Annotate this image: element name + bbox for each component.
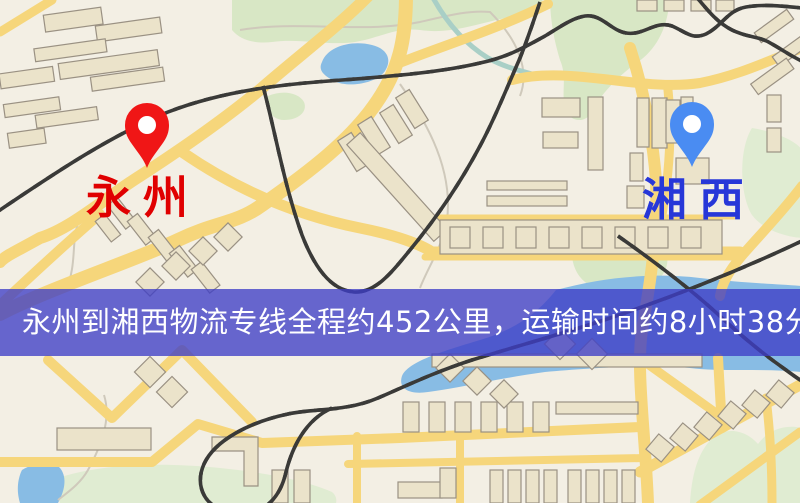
origin-pin-icon[interactable] [123,102,171,168]
pond-bottom-left [18,463,65,503]
route-info-banner: 永州到湘西物流专线全程约452公里，运输时间约8小时38分钟. [0,289,800,356]
destination-pin-icon[interactable] [668,101,716,167]
map-artwork [0,0,800,503]
origin-pin-hole [138,116,156,134]
destination-city-label: 湘西 [642,177,756,222]
route-info-text: 永州到湘西物流专线全程约452公里，运输时间约8小时38分钟. [22,305,800,339]
map-canvas: 永州 湘西 永州到湘西物流专线全程约452公里，运输时间约8小时38分钟. [0,0,800,503]
origin-city-label: 永州 [86,175,200,220]
destination-pin-hole [683,115,701,133]
